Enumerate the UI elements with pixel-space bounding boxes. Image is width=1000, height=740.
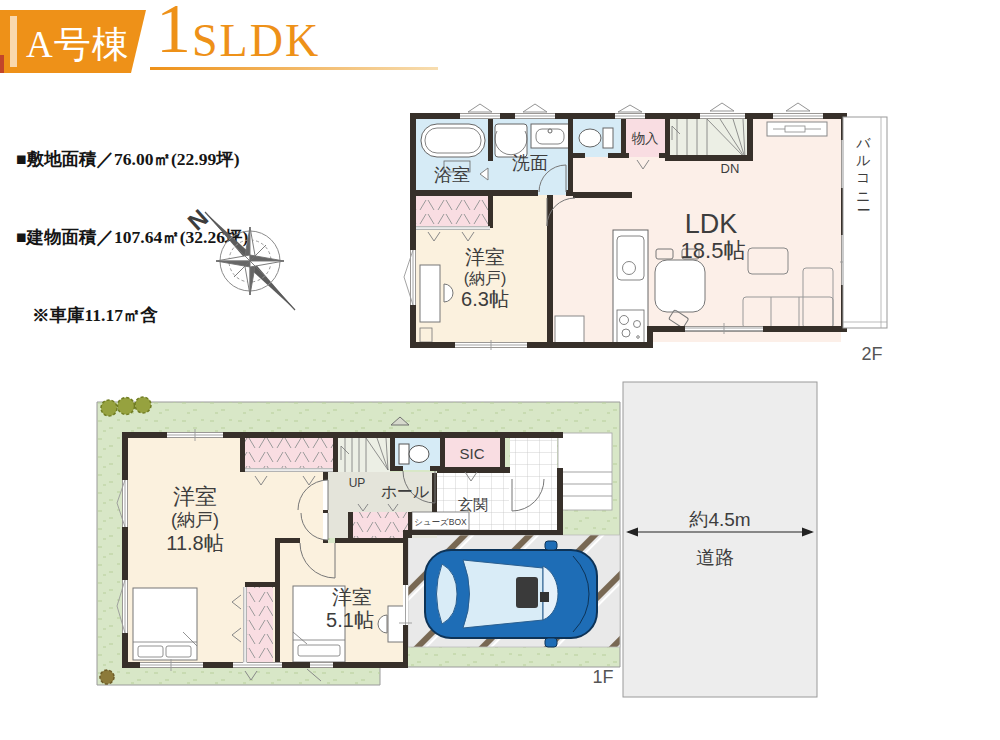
ldk-size-label: 18.5帖 — [681, 238, 746, 263]
bedroom-2f-size-label: 6.3帖 — [461, 288, 509, 310]
shelf-counter — [767, 122, 827, 136]
stairs-1f — [338, 438, 390, 472]
sic-label: SIC — [459, 445, 484, 462]
bedroom-2f-label: 洋室 — [465, 246, 505, 268]
stairs-2f — [667, 119, 753, 160]
compass-rose: N — [185, 198, 315, 328]
fridge-space — [555, 316, 584, 346]
stairs-dn-label: DN — [721, 161, 740, 176]
bedroom-2f-sub-label: (納戸) — [464, 270, 507, 287]
bedroom1-sub-label: (納戸) — [171, 510, 219, 530]
site-area-line: ■敷地面積／76.00㎡(22.99坪) — [16, 146, 248, 172]
car — [425, 541, 597, 647]
ldk-label: LDK — [685, 209, 738, 239]
bath-label: 浴室 — [434, 165, 470, 185]
compass-star — [216, 227, 284, 295]
bedroom1-size-label: 11.8帖 — [166, 532, 223, 554]
balcony-label: バルコニー — [855, 127, 872, 212]
bedroom2-label: 洋室 — [332, 586, 372, 608]
badge-accent-sliver — [0, 55, 4, 73]
toilet-icon-2f — [579, 128, 613, 148]
floorplan-1f: 洋室 (納戸) 11.8帖 洋室 5.1帖 UP ホール SIC 玄関 シューズ… — [95, 380, 830, 700]
north-label: N — [185, 204, 213, 236]
toilet-icon-1f — [399, 444, 429, 464]
building-name: A号棟 — [26, 20, 130, 70]
plan-number: 1 — [156, 0, 191, 64]
floorplan-2f: 浴室 洗面 物入 DN LDK 18.5帖 洋室 (納戸) 6.3帖 バルコニー… — [400, 100, 900, 365]
floorplan-sheet: A号棟 1 SLDK ■敷地面積／76.00㎡(22.99坪) ■建物面積／10… — [0, 0, 1000, 740]
entrance-label: 玄関 — [458, 496, 488, 513]
hall-label: ホール — [381, 483, 430, 500]
road-label: 道路 — [696, 547, 734, 568]
closet-2f-hatch — [416, 195, 490, 228]
stairs-up-label: UP — [349, 476, 366, 490]
road-width-label: 約4.5m — [688, 509, 750, 530]
title-underline — [150, 67, 438, 70]
washroom-label: 洗面 — [512, 153, 548, 173]
plan-letters: SLDK — [192, 18, 320, 64]
bedroom1-label: 洋室 — [173, 484, 217, 509]
storage-label: 物入 — [632, 131, 660, 146]
sink-icon — [531, 124, 569, 148]
floor2-label: 2F — [861, 344, 882, 364]
bedroom2-size-label: 5.1帖 — [326, 609, 374, 631]
badge-stripe — [10, 16, 17, 67]
bed-bedroom1 — [133, 588, 197, 660]
floor1-label: 1F — [592, 667, 613, 687]
shoes-box-label: シューズBOX — [414, 517, 467, 527]
road — [623, 382, 817, 697]
entrance-steps — [558, 433, 612, 510]
building-badge: A号棟 — [0, 10, 146, 73]
kitchen-counter — [613, 230, 648, 345]
